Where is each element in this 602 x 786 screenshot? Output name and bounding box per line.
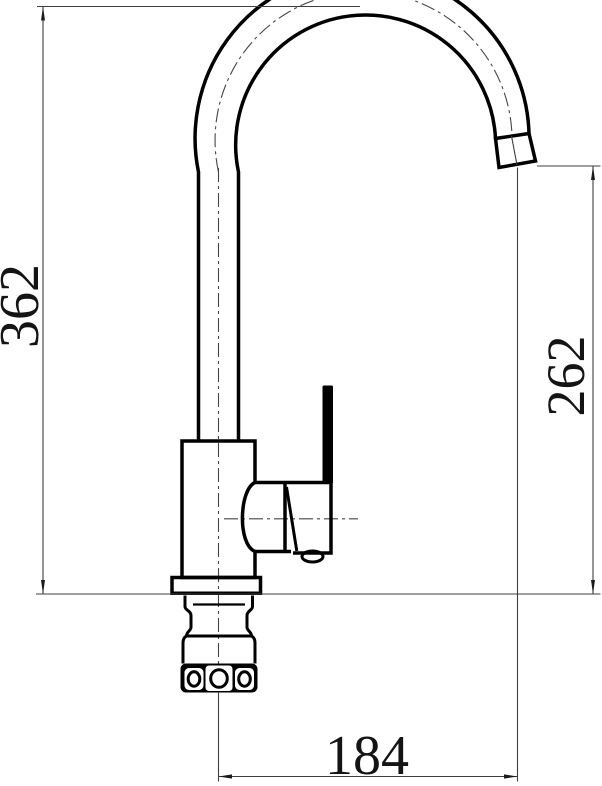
arrowhead-184-left xyxy=(219,774,233,778)
spout-arc-centerline xyxy=(215,0,512,172)
base-flange xyxy=(172,578,261,594)
handle-front-edge xyxy=(287,487,297,551)
dimension-label-outlet-height: 262 xyxy=(536,336,596,417)
dimension-spout-reach: 184 xyxy=(219,168,518,786)
arrowhead-262-bottom xyxy=(591,580,595,594)
arrowhead-362-top xyxy=(41,7,45,21)
dimension-label-spout-reach: 184 xyxy=(325,725,409,786)
arrowhead-184-right xyxy=(504,774,518,778)
connector-port-right-hole xyxy=(239,672,251,686)
handle-lever xyxy=(323,386,334,484)
spout-outer-edge xyxy=(195,0,529,441)
arrowhead-362-bottom xyxy=(41,580,45,594)
hose-connector xyxy=(181,664,258,693)
shank-left-profile xyxy=(185,596,191,637)
spout-aerator-cap xyxy=(496,134,536,168)
drawing-svg: 362 262 184 xyxy=(0,0,602,786)
shank-right-profile xyxy=(247,596,253,637)
cartridge-bulge xyxy=(242,483,255,552)
faucet-technical-drawing: 362 262 184 xyxy=(0,0,602,786)
dimension-overall-height: 362 xyxy=(0,7,360,595)
handle-housing xyxy=(255,483,331,554)
spout-inner-edge xyxy=(236,15,496,441)
arrowhead-262-top xyxy=(591,166,595,180)
connector-port-center-hole xyxy=(211,670,228,688)
dimension-outlet-height: 262 xyxy=(536,166,601,594)
faucet-outline xyxy=(172,0,536,692)
dimension-label-overall-height: 362 xyxy=(0,264,51,348)
connector-port-left-hole xyxy=(188,672,200,686)
